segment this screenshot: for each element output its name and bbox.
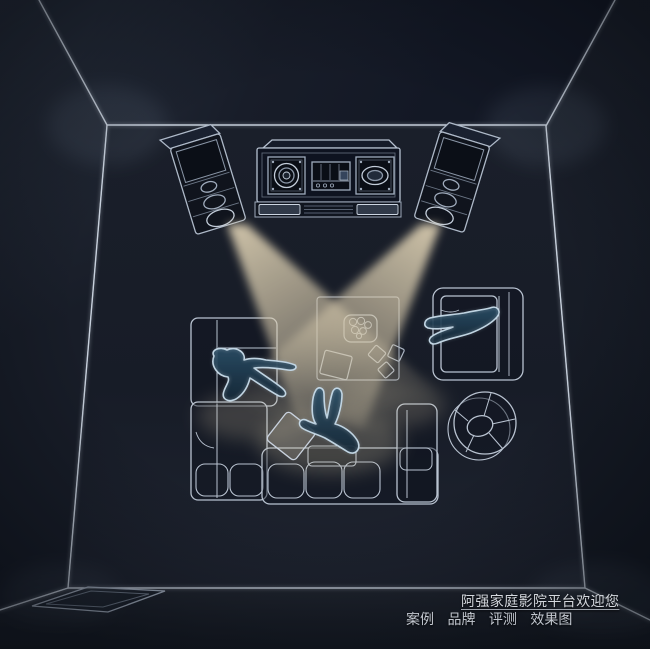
woofer-cap (283, 172, 290, 179)
screw-icon (360, 188, 362, 190)
base-foot-right (357, 205, 398, 215)
console-speaker-module (268, 157, 305, 194)
screw-icon (272, 188, 274, 190)
nav-item-renders[interactable]: 效果图 (530, 612, 572, 628)
screw-icon (299, 161, 301, 163)
screw-icon (299, 188, 301, 190)
screw-icon (388, 161, 390, 163)
screw-icon (388, 188, 390, 190)
console-base (255, 202, 401, 217)
console-deck-module (356, 157, 394, 194)
round-chair-rim (454, 392, 516, 454)
media-console (255, 140, 401, 217)
deck-hub (368, 171, 383, 181)
watermark-nav: 案例 品牌 评测 效果图 (406, 609, 572, 629)
nav-item-reviews[interactable]: 评测 (489, 612, 517, 628)
home-theater-illustration: 阿强家庭影院平台欢迎您 案例 品牌 评测 效果图 (0, 0, 650, 649)
nav-item-brands[interactable]: 品牌 (447, 612, 475, 628)
console-receiver-module (312, 162, 350, 190)
watermark-welcome-link[interactable]: 阿强家庭影院平台欢迎您 (461, 591, 619, 611)
screw-icon (360, 161, 362, 163)
room-scene-svg (0, 0, 650, 649)
screw-icon (272, 161, 274, 163)
base-foot-left (259, 205, 300, 215)
display-badge (340, 171, 348, 180)
console-top (263, 140, 397, 148)
nav-item-cases[interactable]: 案例 (406, 612, 434, 628)
